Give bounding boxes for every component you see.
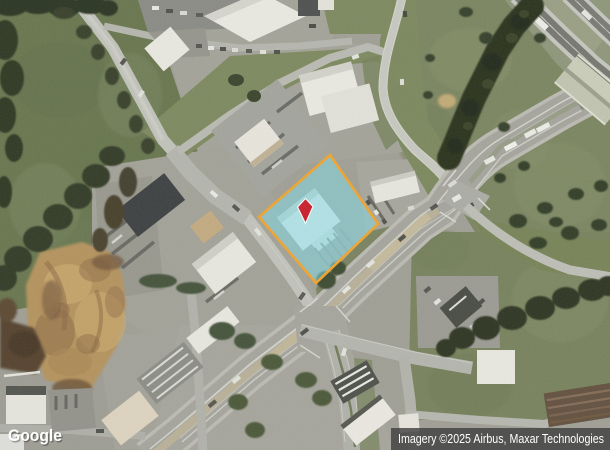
- svg-text:Imagery ©2025 Airbus, Maxar Te: Imagery ©2025 Airbus, Maxar Technologies: [398, 432, 604, 446]
- svg-text:Google: Google: [8, 426, 62, 445]
